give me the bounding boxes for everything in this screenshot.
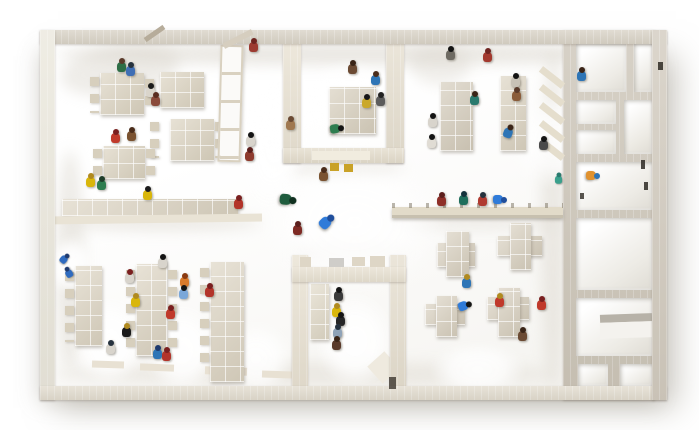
figurine (127, 128, 136, 141)
figurine (427, 135, 436, 148)
floor-slat (140, 363, 174, 371)
figurine (577, 68, 586, 81)
counter-object (300, 257, 311, 267)
chair-row (90, 77, 99, 113)
shelf-cell (576, 218, 652, 290)
figurine-head (119, 58, 125, 64)
floor-slat (92, 360, 124, 368)
figurine (470, 92, 479, 105)
figurine (512, 88, 521, 101)
right-outer-wall (652, 30, 667, 400)
figurine (495, 294, 504, 307)
figurine (446, 47, 455, 60)
chair-row (93, 149, 102, 177)
meeting-room-counter (312, 151, 370, 160)
figurine (179, 286, 188, 299)
figurine-head (160, 254, 166, 260)
door-mark (658, 62, 663, 70)
figurine (437, 193, 446, 206)
figurine (111, 130, 120, 143)
figurine-head (594, 173, 600, 179)
figurine (249, 39, 258, 52)
figurine (125, 270, 134, 283)
figurine-head (485, 48, 491, 54)
shelf-cell (576, 130, 616, 154)
figurine (371, 72, 380, 85)
figurine-head (145, 186, 151, 192)
shelf-cell (620, 364, 652, 386)
figurine (478, 193, 487, 206)
figurine-head (127, 269, 133, 275)
kitchen-shelf (310, 284, 329, 340)
figurine (539, 137, 548, 150)
figurine (332, 337, 341, 350)
figurine (97, 177, 106, 190)
floor-slat (262, 370, 292, 378)
figurine-head (108, 340, 114, 346)
figurine-head (448, 46, 454, 52)
figurine-head (373, 71, 379, 77)
desk-pinwheel (510, 223, 531, 270)
figurine (362, 95, 371, 108)
partition-shelf-right (392, 207, 563, 218)
desk-pinwheel (436, 296, 457, 337)
figurine-head (338, 312, 344, 318)
figurine (131, 294, 140, 307)
figurine (117, 59, 126, 72)
shelf-cell (578, 364, 608, 386)
figurine (279, 193, 295, 205)
figurine (334, 288, 343, 301)
top-wall (40, 30, 667, 44)
figurine (143, 187, 152, 200)
figurine-head (99, 176, 105, 182)
figurine-head (513, 73, 519, 79)
stool (344, 164, 353, 172)
figurine (555, 173, 562, 183)
shelf-cell (576, 162, 652, 210)
window-partition (217, 45, 243, 163)
door-mark (644, 182, 648, 190)
figurine-head (148, 83, 154, 89)
counter-object (352, 257, 365, 266)
figurine-head (364, 94, 370, 100)
figurine-head (501, 197, 507, 203)
desk-row (136, 264, 167, 356)
kitchen-counter (292, 267, 406, 282)
figurine (246, 133, 255, 146)
desk-cluster (160, 72, 204, 108)
figurine (234, 196, 243, 209)
counter-object (329, 258, 344, 267)
figurine (319, 168, 328, 181)
figurine-head (579, 67, 585, 73)
figurine (348, 61, 357, 74)
chair-row (146, 149, 155, 177)
figurine-head (350, 60, 356, 66)
figurine (166, 306, 175, 319)
figurine (428, 114, 437, 127)
figurine-head (338, 125, 345, 132)
figurine (493, 195, 506, 204)
figurine-head (334, 336, 340, 342)
counter-object (370, 256, 385, 267)
shelf-cell (576, 100, 616, 124)
figurine (293, 222, 302, 235)
figurine (511, 74, 520, 87)
figurine (462, 275, 471, 288)
figurine (122, 324, 131, 337)
desk-cluster (103, 146, 145, 179)
figurine-head (124, 323, 130, 329)
figurine-head (430, 113, 436, 119)
door-notch (389, 377, 396, 389)
figurine-head (236, 195, 242, 201)
figurine (153, 346, 162, 359)
figurine-head (472, 91, 478, 97)
figurine (126, 63, 135, 76)
figurine-head (181, 285, 187, 291)
figurine-head (378, 92, 384, 98)
figurine (162, 348, 171, 361)
figurine-head (153, 92, 159, 98)
figurine-head (557, 173, 562, 178)
shelf-step-top (600, 321, 653, 339)
figurine-head (429, 134, 435, 140)
figurine-head (182, 273, 188, 279)
figurine-head (155, 345, 161, 351)
left-wall (40, 30, 55, 400)
shelf-cell (624, 100, 652, 154)
desk-cluster (170, 119, 214, 161)
figurine-head (113, 129, 119, 135)
door-mark (641, 160, 645, 169)
shelf-cell (634, 44, 652, 92)
figurine (286, 117, 295, 130)
figurine-head (439, 192, 445, 198)
figurine-head (480, 192, 486, 198)
chair-row (65, 272, 74, 342)
bottom-wall (40, 386, 667, 400)
figurine-head (288, 116, 294, 122)
figurine (483, 49, 492, 62)
stool (330, 163, 339, 171)
figurine-head (336, 287, 342, 293)
desk-cluster (100, 73, 144, 115)
figurine (586, 171, 599, 180)
desk-pinwheel (446, 231, 469, 277)
figurine-head (334, 303, 340, 309)
figurine (376, 93, 385, 106)
figurine-head (164, 347, 170, 353)
desk-row (210, 262, 244, 382)
figurine-head (520, 327, 526, 333)
figurine (205, 284, 214, 297)
desk-row (75, 266, 102, 346)
figurine-head (514, 87, 520, 93)
figurine-head (295, 221, 301, 227)
figurine (86, 174, 95, 187)
figurine-head (461, 191, 467, 197)
figurine-head (248, 132, 254, 138)
figurine (151, 93, 160, 106)
figurine-head (497, 293, 503, 299)
figurine (245, 148, 254, 161)
figurine-head (539, 296, 545, 302)
figurine-head (335, 324, 341, 330)
figurine (106, 341, 115, 354)
figurine-head (129, 127, 135, 133)
figurine-head (88, 173, 94, 179)
model-stage (0, 0, 699, 430)
meeting-room-right-wall (386, 42, 404, 163)
figurine (518, 328, 527, 341)
figurine-head (251, 38, 257, 44)
floor-shadow (410, 45, 470, 85)
figurine-head (247, 147, 253, 153)
figurine (459, 192, 468, 205)
figurine (537, 297, 546, 310)
figurine-head (464, 274, 470, 280)
figurine-head (207, 283, 213, 289)
meeting-room-left-wall (283, 42, 301, 163)
door-mark (580, 193, 584, 199)
figurine-head (541, 136, 547, 142)
figurine-head (133, 293, 139, 299)
figurine-head (128, 62, 134, 68)
long-table (440, 82, 473, 151)
figurine-head (168, 305, 174, 311)
figurine (158, 255, 167, 268)
figurine-head (321, 167, 327, 173)
